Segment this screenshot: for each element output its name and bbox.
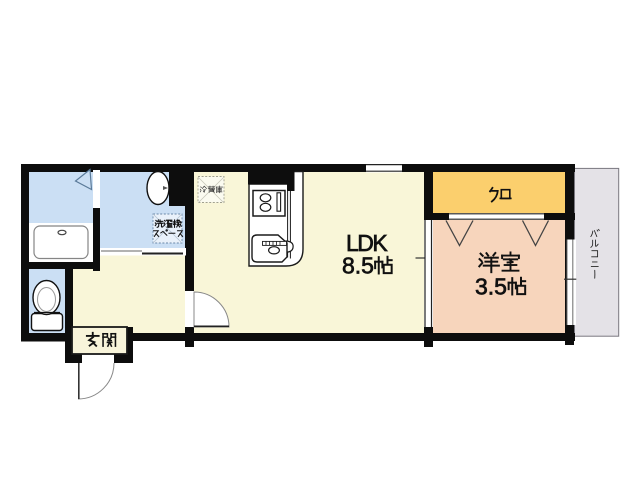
svg-text:8.5: 8.5 bbox=[342, 253, 374, 279]
svg-text:3.5: 3.5 bbox=[475, 274, 507, 300]
